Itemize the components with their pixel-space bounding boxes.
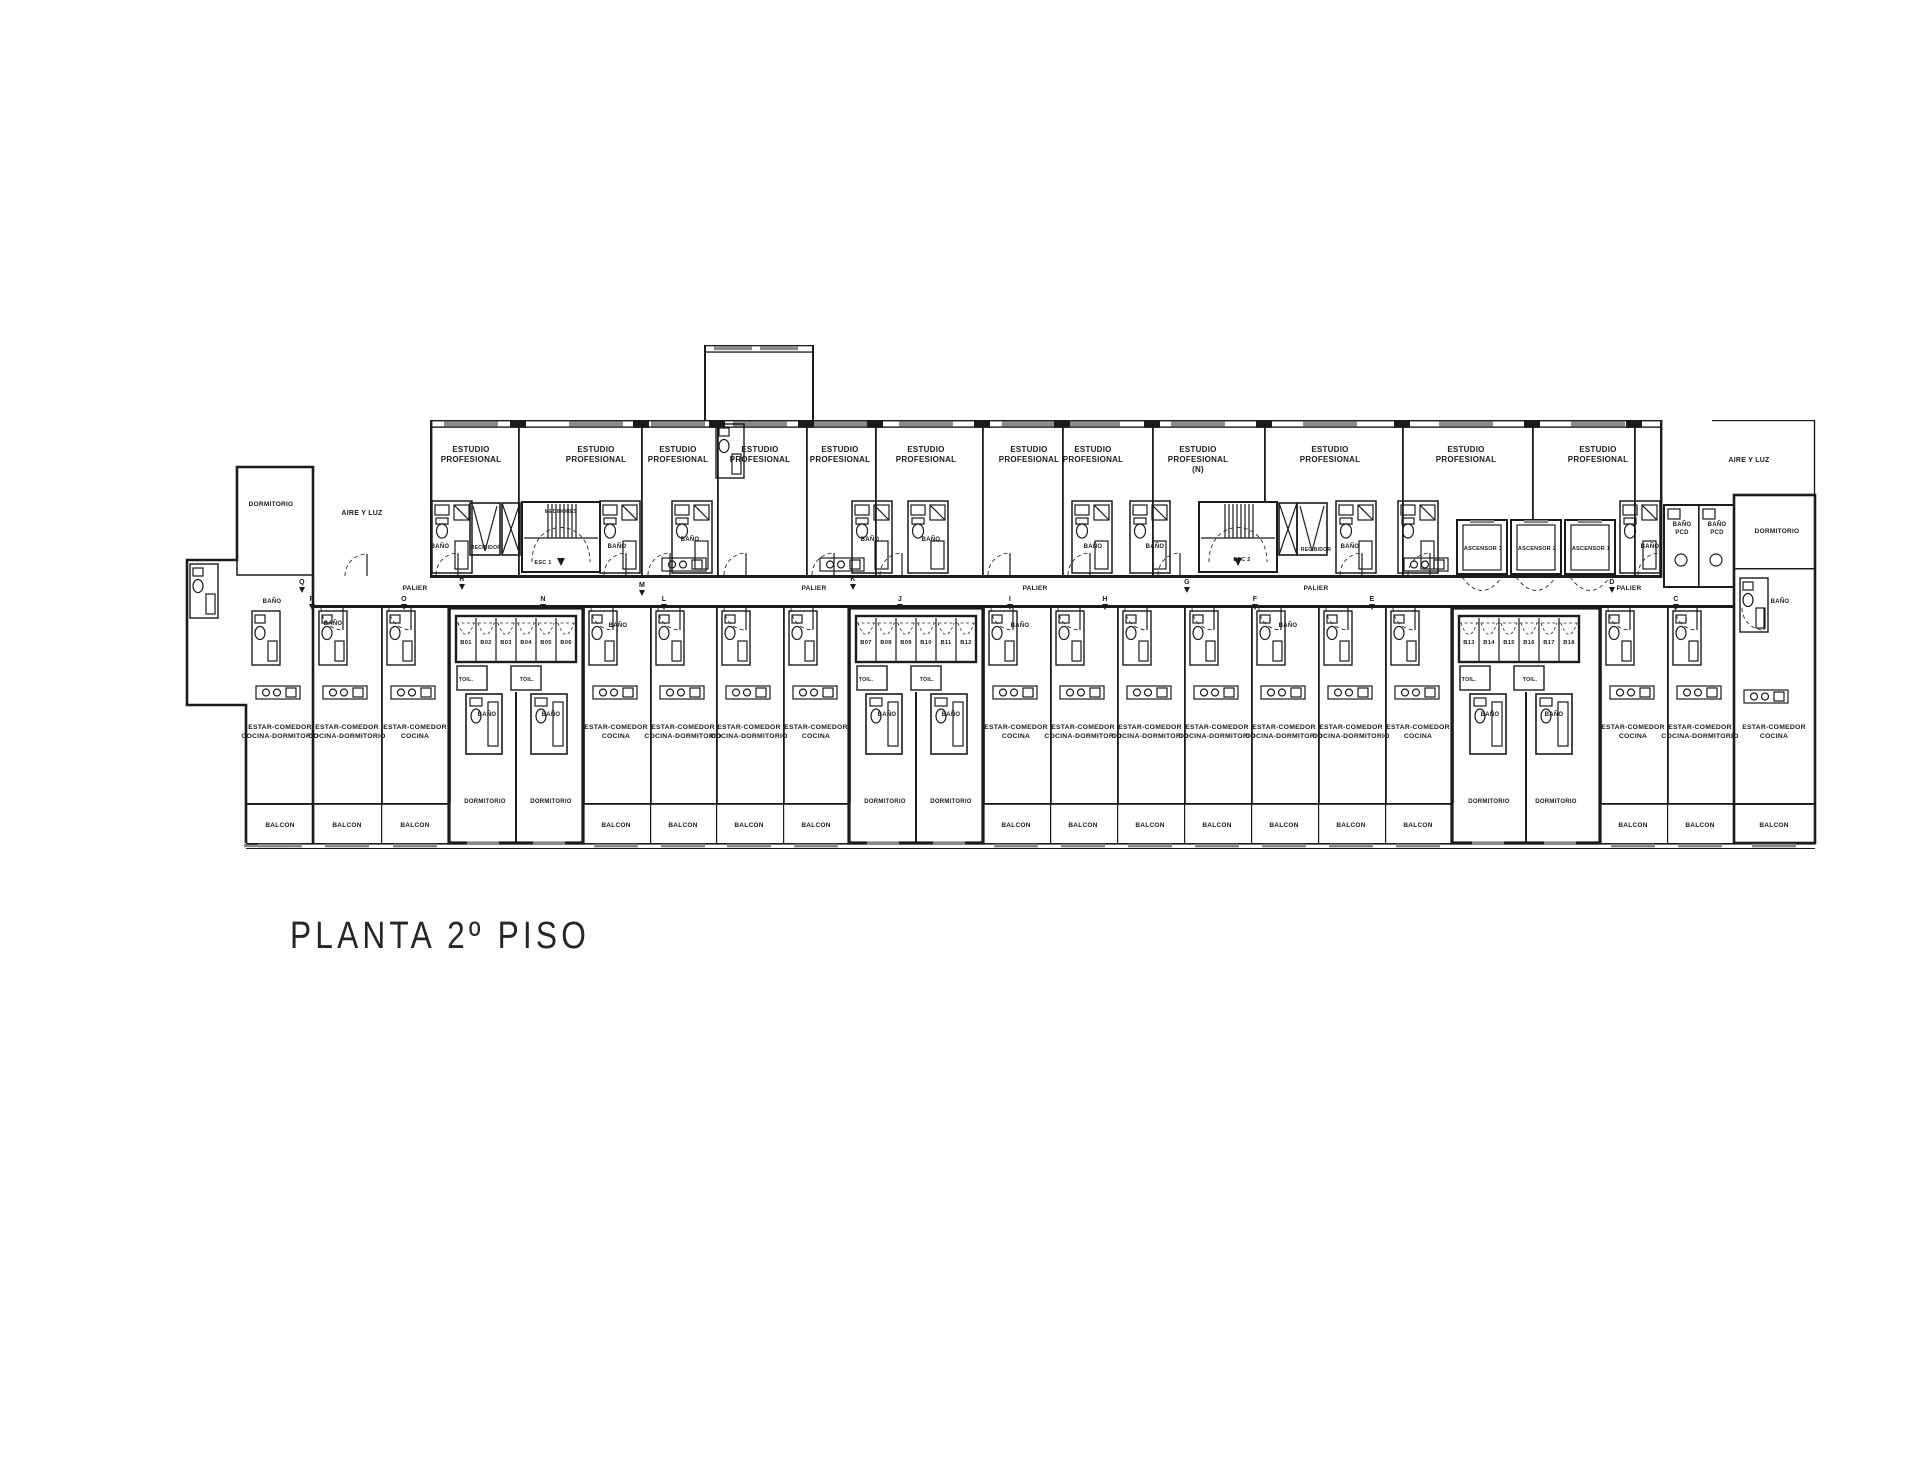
left-end-unit <box>187 467 313 847</box>
stair-label-esc2: ESC 2 <box>1233 557 1250 563</box>
room-label-estar: ESTAR-COMEDORCOCINA <box>383 724 447 740</box>
raised-block <box>704 345 814 421</box>
room-label-toilette: TOIL. <box>1462 677 1477 683</box>
grid-marker: F <box>1253 596 1258 603</box>
room-label-estar: ESTAR-COMEDORCOCINA-DORMITORIO <box>1178 724 1255 740</box>
grid-marker: L <box>662 596 667 603</box>
grid-marker: O <box>401 596 407 603</box>
storage-label-baulera: B04 <box>520 640 532 646</box>
storage-label-baulera: B11 <box>940 640 952 646</box>
room-label-medidores: MEDIDORES <box>545 509 578 515</box>
storage-label-baulera: B15 <box>1503 640 1515 646</box>
corridor-label-palier: PALIER <box>403 585 428 592</box>
room-label-dormitorio: DORMITORIO <box>1535 799 1576 805</box>
room-label-dormitorio: DORMITORIO <box>864 799 905 805</box>
drawing-sheet: ESTUDIOPROFESIONALESTUDIOPROFESIONALESTU… <box>0 0 1920 1484</box>
grid-marker: N <box>540 596 545 603</box>
corridor-label-palier: PALIER <box>1023 585 1048 592</box>
room-label-balcon: BALCON <box>1336 822 1365 829</box>
room-label-estar: ESTAR-COMEDORCOCINA <box>784 724 848 740</box>
room-label-estar: ESTAR-COMEDORCOCINA-DORMITORIO <box>1245 724 1322 740</box>
room-label-bano: BAÑO <box>1146 543 1165 550</box>
raised-block-bath <box>716 424 744 478</box>
walls-layer <box>187 345 1815 849</box>
room-label-aire-y-luz: AIRE Y LUZ <box>1728 457 1770 464</box>
lift-shaft <box>502 503 520 555</box>
room-label-bano: BAÑO <box>1641 543 1660 550</box>
room-label-balcon: BALCON <box>1269 822 1298 829</box>
room-label-estar: ESTAR-COMEDORCOCINA-DORMITORIO <box>710 724 787 740</box>
lift-label-ascensor: ASCENSOR 2 <box>1518 546 1556 552</box>
storage-label-baulera: B01 <box>460 640 472 646</box>
room-label-estudio: ESTUDIOPROFESIONAL <box>730 445 791 464</box>
room-label-estudio: ESTUDIOPROFESIONAL <box>1436 445 1497 464</box>
room-label-balcon: BALCON <box>801 822 830 829</box>
storage-label-baulera: B07 <box>860 640 871 646</box>
storage-label-baulera: B08 <box>880 640 892 646</box>
room-label-aire-y-luz: AIRE Y LUZ <box>341 510 383 517</box>
grid-marker: H <box>1102 596 1107 603</box>
room-label-toilette: TOIL. <box>1523 677 1538 683</box>
room-label-balcon: BALCON <box>332 822 361 829</box>
storage-label-baulera: B09 <box>900 640 912 646</box>
room-label-bano: BAÑO <box>1084 543 1103 550</box>
room-label-balcon: BALCON <box>1001 822 1030 829</box>
room-label-bano: BAÑO <box>942 711 961 718</box>
grid-marker: G <box>1184 579 1190 586</box>
storage-label-baulera: B10 <box>920 640 931 646</box>
room-label-balcon: BALCON <box>1759 822 1788 829</box>
grid-marker: K <box>850 576 855 583</box>
room-label-estar: ESTAR-COMEDORCOCINA <box>984 724 1048 740</box>
grid-marker-arrow <box>459 584 465 590</box>
room-label-dormitorio: DORMITORIO <box>1755 528 1800 535</box>
room-label-balcon: BALCON <box>1202 822 1231 829</box>
room-label-bano: BAÑO <box>431 543 450 550</box>
room-label-bano: BAÑO <box>1771 598 1790 605</box>
storage-label-baulera: B02 <box>480 640 491 646</box>
room-label-toilette: TOIL. <box>520 677 535 683</box>
storage-label-baulera: B06 <box>560 640 572 646</box>
room-label-bano: BAÑO <box>1011 622 1030 629</box>
room-label-bano: BAÑO <box>263 598 282 605</box>
room-label-bano: BAÑO <box>608 543 627 550</box>
room-label-estudio: ESTUDIOPROFESIONAL <box>810 445 871 464</box>
room-label-dormitorio: DORMITORIO <box>464 799 505 805</box>
grid-marker: J <box>898 596 902 603</box>
room-label-recibidor: RECIBIDOR <box>1301 547 1331 553</box>
room-label-toilette: TOIL. <box>920 677 935 683</box>
room-label-bano: BAÑO <box>878 711 897 718</box>
grid-marker-arrow <box>850 584 856 590</box>
grid-marker: M <box>639 582 645 589</box>
room-label-bano: BAÑO <box>324 620 343 627</box>
room-label-toilette: TOIL. <box>859 677 874 683</box>
room-label-bano: BAÑO <box>542 711 561 718</box>
room-label-bano: BAÑO <box>1279 622 1298 629</box>
storage-label-baulera: B12 <box>960 640 971 646</box>
lift-label-ascensor: ASCENSOR 1 <box>1572 546 1610 552</box>
room-label-estudio: ESTUDIOPROFESIONAL <box>1568 445 1629 464</box>
room-label-bano-pcd: BAÑOPCD <box>1708 521 1727 536</box>
corridor-label-palier: PALIER <box>802 585 827 592</box>
room-label-balcon: BALCON <box>668 822 697 829</box>
room-label-estudio: ESTUDIOPROFESIONAL <box>566 445 627 464</box>
storage-label-baulera: B13 <box>1463 640 1475 646</box>
grid-marker: C <box>1673 596 1678 603</box>
grid-marker: P <box>310 596 315 603</box>
room-label-bano: BAÑO <box>1481 711 1500 718</box>
grid-marker-arrow <box>1184 587 1190 593</box>
grid-marker: R <box>459 576 464 583</box>
lift-label-ascensor: ASCENSOR 3 <box>1464 546 1502 552</box>
room-label-estar: ESTAR-COMEDORCOCINA-DORMITORIO <box>308 724 385 740</box>
room-label-estudio: ESTUDIOPROFESIONAL <box>1063 445 1124 464</box>
room-label-bano: BAÑO <box>861 536 880 543</box>
fixtures-layer <box>190 424 1788 754</box>
room-label-balcon: BALCON <box>400 822 429 829</box>
room-label-estudio: ESTUDIOPROFESIONAL <box>1300 445 1361 464</box>
corridor-label-palier: PALIER <box>1617 585 1642 592</box>
room-label-dormitorio: DORMITORIO <box>249 501 294 508</box>
grid-marker-arrow <box>1609 587 1615 593</box>
storage-label-baulera: B03 <box>500 640 512 646</box>
grid-marker: I <box>1009 596 1011 603</box>
storage-label-baulera: B05 <box>540 640 552 646</box>
floor-plan-svg: ESTUDIOPROFESIONALESTUDIOPROFESIONALESTU… <box>0 0 1920 1484</box>
room-label-dormitorio: DORMITORIO <box>1468 799 1509 805</box>
room-label-estar: ESTAR-COMEDORCOCINA-DORMITORIO <box>1044 724 1121 740</box>
room-label-balcon: BALCON <box>1618 822 1647 829</box>
room-label-dormitorio: DORMITORIO <box>530 799 571 805</box>
room-label-estar: ESTAR-COMEDORCOCINA-DORMITORIO <box>241 724 318 740</box>
room-label-bano: BAÑO <box>1545 711 1564 718</box>
room-label-estar: ESTAR-COMEDORCOCINA-DORMITORIO <box>1111 724 1188 740</box>
stair-label-esc1: ESC 1 <box>534 560 551 566</box>
drawing-title: PLANTA 2º PISO <box>290 915 590 957</box>
storage-label-baulera: B14 <box>1483 640 1495 646</box>
room-label-bano: BAÑO <box>1341 543 1360 550</box>
room-label-toilette: TOIL. <box>459 677 474 683</box>
storage-label-baulera: B18 <box>1563 640 1575 646</box>
grid-marker: D <box>1609 579 1614 586</box>
room-label-balcon: BALCON <box>1685 822 1714 829</box>
room-label-estudio: ESTUDIOPROFESIONAL(N) <box>1168 445 1229 474</box>
room-label-estar: ESTAR-COMEDORCOCINA-DORMITORIO <box>1661 724 1738 740</box>
corridor-label-palier: PALIER <box>1304 585 1329 592</box>
room-label-balcon: BALCON <box>1403 822 1432 829</box>
room-label-bano: BAÑO <box>681 536 700 543</box>
room-label-estar: ESTAR-COMEDORCOCINA <box>1742 724 1806 740</box>
room-label-balcon: BALCON <box>1135 822 1164 829</box>
room-label-bano: BAÑO <box>922 536 941 543</box>
room-label-balcon: BALCON <box>601 822 630 829</box>
room-label-bano: BAÑO <box>609 622 628 629</box>
storage-row <box>456 616 576 662</box>
storage-label-baulera: B16 <box>1523 640 1535 646</box>
grid-marker: E <box>1370 596 1375 603</box>
window-strips-top <box>444 421 1625 426</box>
storage-label-baulera: B17 <box>1543 640 1554 646</box>
room-label-balcon: BALCON <box>1068 822 1097 829</box>
grid-marker-arrow <box>299 587 305 593</box>
room-label-bano: BAÑO <box>478 711 497 718</box>
room-label-estar: ESTAR-COMEDORCOCINA <box>1386 724 1450 740</box>
room-label-estudio: ESTUDIOPROFESIONAL <box>648 445 709 464</box>
room-label-estar: ESTAR-COMEDORCOCINA <box>584 724 648 740</box>
room-label-estudio: ESTUDIOPROFESIONAL <box>999 445 1060 464</box>
room-label-dormitorio: DORMITORIO <box>930 799 971 805</box>
room-label-estar: ESTAR-COMEDORCOCINA <box>1601 724 1665 740</box>
room-label-estudio: ESTUDIOPROFESIONAL <box>441 445 502 464</box>
storage-row <box>1459 616 1579 662</box>
storage-row <box>856 616 976 662</box>
grid-marker-arrow <box>639 590 645 596</box>
lift-shaft <box>1279 503 1297 555</box>
grid-marker: Q <box>299 579 305 586</box>
room-label-recibidor: RECIBIDOR <box>471 545 501 551</box>
room-label-estudio: ESTUDIOPROFESIONAL <box>896 445 957 464</box>
room-label-balcon: BALCON <box>734 822 763 829</box>
room-label-balcon: BALCON <box>265 822 294 829</box>
room-label-estar: ESTAR-COMEDORCOCINA-DORMITORIO <box>1312 724 1389 740</box>
room-label-bano-pcd: BAÑOPCD <box>1673 521 1692 536</box>
